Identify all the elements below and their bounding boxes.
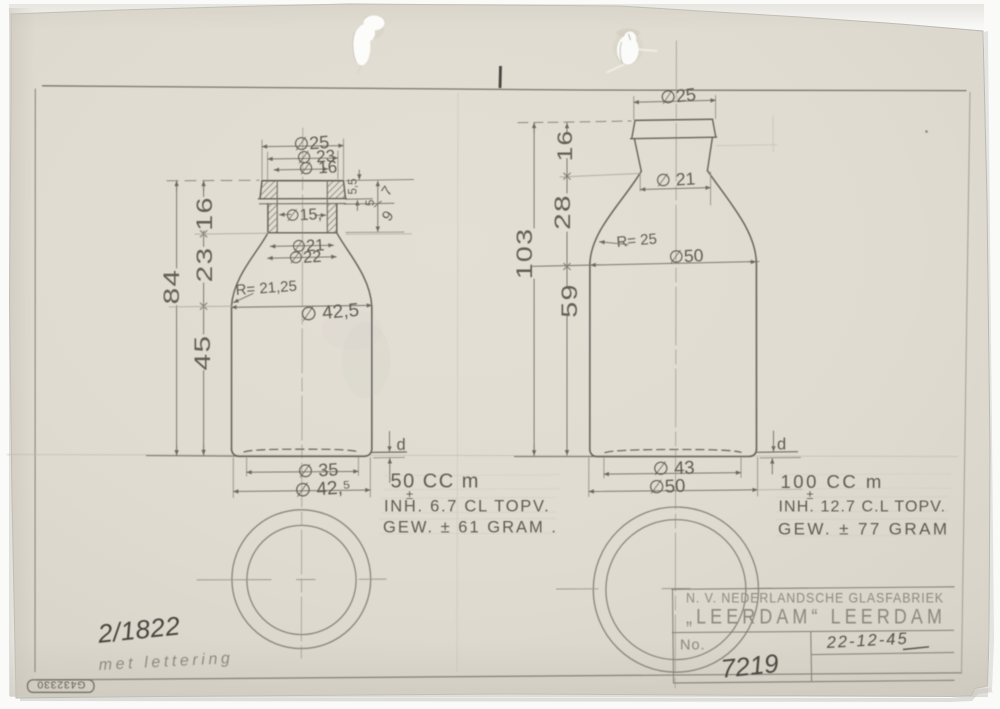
svg-text:16: 16 [193,196,217,230]
svg-text:∅50: ∅50 [668,245,704,267]
svg-text:d: d [397,436,406,454]
svg-text:∅22: ∅22 [288,248,322,268]
svg-text:∅50: ∅50 [648,475,686,498]
svg-text:5,5: 5,5 [348,179,360,195]
svg-text:5: 5 [365,200,377,206]
svg-text:16: 16 [553,130,577,162]
svg-text:No.: No. [680,638,706,654]
svg-text:R= 25: R= 25 [616,231,658,251]
svg-text:103: 103 [513,228,537,280]
svg-text:7219: 7219 [719,648,780,684]
svg-text:∅25: ∅25 [659,84,697,108]
svg-text:∅ 42,⁵: ∅ 42,⁵ [294,477,351,502]
svg-text:84: 84 [159,269,184,305]
svg-text:N. V. NEDERLANDSCHE GLASFABRIE: N. V. NEDERLANDSCHE GLASFABRIEK [686,591,944,606]
svg-text:23: 23 [192,247,217,283]
svg-text:100 CC m: 100 CC m [781,471,884,492]
svg-text:GEW. ± 77 GRAM: GEW. ± 77 GRAM [778,520,949,539]
svg-text:50 CC m: 50 CC m [391,471,480,493]
svg-text:59: 59 [558,283,582,317]
svg-text:∅15,: ∅15, [285,206,322,225]
svg-text:28: 28 [550,194,575,230]
svg-text:45: 45 [190,335,215,371]
svg-text:G432330: G432330 [37,679,86,691]
svg-text:∅ 16: ∅ 16 [298,157,337,178]
svg-text:„LEERDAM“ LEERDAM: „LEERDAM“ LEERDAM [686,605,946,629]
svg-text:GEW. ± 61 GRAM .: GEW. ± 61 GRAM . [383,519,558,537]
svg-text:∅ 21: ∅ 21 [655,168,696,190]
svg-text:INH. 12.7 C.L TOPV.: INH. 12.7 C.L TOPV. [779,499,947,516]
svg-text:d: d [777,436,786,454]
svg-text:INH. 6.7 CL TOPV.: INH. 6.7 CL TOPV. [384,498,550,516]
